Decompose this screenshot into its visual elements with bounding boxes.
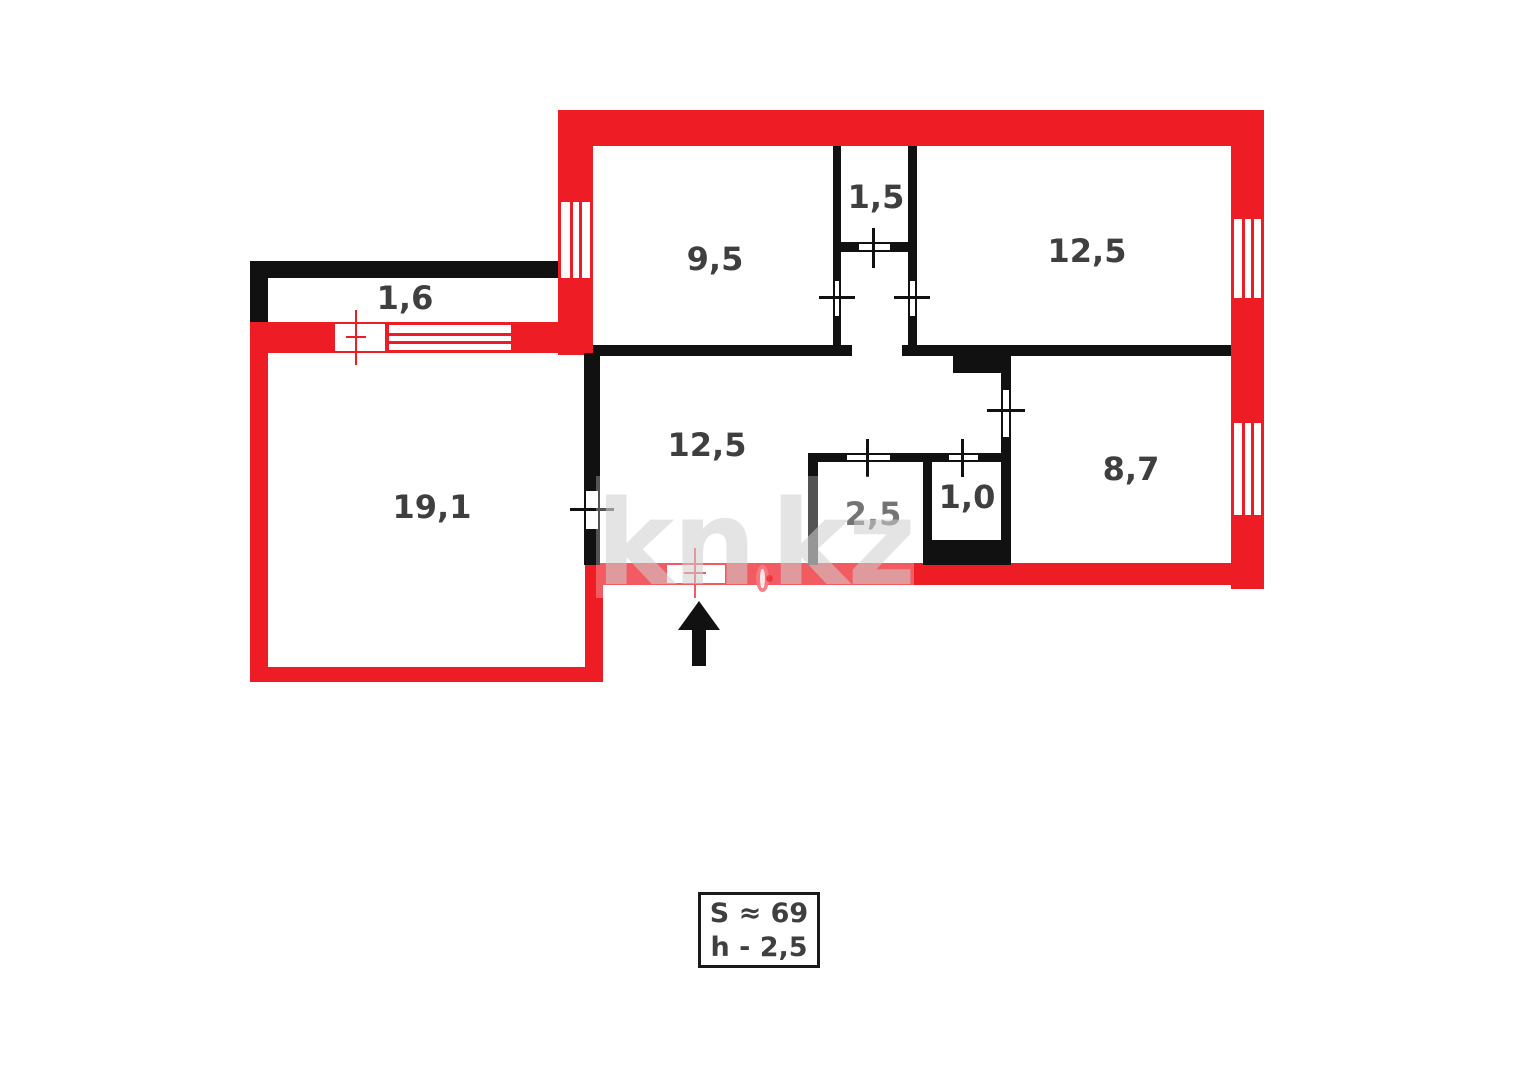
window-left-wall xyxy=(559,200,592,280)
info-box-height: h - 2,5 xyxy=(701,931,817,965)
room87-door-tick xyxy=(987,409,1025,412)
room-label-toilet: 1,0 xyxy=(939,478,996,516)
bathroom-door-tick xyxy=(866,439,869,477)
toilet-duct-block xyxy=(923,540,1011,565)
entrance-door xyxy=(665,563,727,585)
room-top-left-door-tick xyxy=(819,296,855,299)
info-box: S ≈ 69 h - 2,5 xyxy=(698,892,820,968)
info-box-area: S ≈ 69 xyxy=(701,897,817,931)
room-label-living-room: 19,1 xyxy=(393,488,472,526)
wall-hall-top-left-segment xyxy=(593,345,852,356)
balcony-door-swing-cross xyxy=(346,336,366,338)
wall-exterior-right xyxy=(1231,110,1264,589)
wall-bathroom-toilet-top xyxy=(808,453,1011,462)
toilet-door-tick xyxy=(961,439,964,477)
wall-bathroom-left xyxy=(808,453,818,565)
wall-balcony-left xyxy=(250,261,268,322)
wall-balcony-top xyxy=(250,261,558,278)
closet-door-tick xyxy=(872,228,875,268)
wall-room87-top xyxy=(1011,345,1231,356)
entrance-door-swing-cross xyxy=(684,572,706,574)
vent-block xyxy=(953,345,1011,373)
wall-hall-left xyxy=(584,353,600,565)
room-label-bathroom: 2,5 xyxy=(845,495,902,533)
wall-living-room-right-lower xyxy=(585,563,603,682)
room-label-hall: 12,5 xyxy=(668,426,747,464)
room-label-top-right: 12,5 xyxy=(1048,232,1127,270)
room-label-bottom-right: 8,7 xyxy=(1103,450,1160,488)
entrance-arrow-icon xyxy=(678,601,720,630)
room-label-top-left: 9,5 xyxy=(687,240,744,278)
floor-plan: 1,6 9,5 1,5 12,5 19,1 12,5 2,5 1,0 8,7 k… xyxy=(0,0,1516,1080)
entrance-arrow-stem xyxy=(692,628,706,666)
wall-exterior-top xyxy=(558,110,1264,146)
window-right-wall-upper xyxy=(1232,217,1263,300)
wall-living-room-left xyxy=(250,322,268,682)
room87-door xyxy=(1001,388,1011,439)
window-balcony xyxy=(387,323,513,352)
room-label-balcony: 1,6 xyxy=(377,279,434,317)
wall-living-room-bottom xyxy=(250,667,603,682)
room-top-right-door-tick xyxy=(894,296,930,299)
wall-bathroom-toilet-divider xyxy=(923,462,932,543)
wall-hall-top-right-segment xyxy=(902,345,953,356)
room-label-closet: 1,5 xyxy=(848,178,905,216)
window-right-wall-lower xyxy=(1232,421,1263,517)
living-room-door-tick xyxy=(570,508,614,511)
